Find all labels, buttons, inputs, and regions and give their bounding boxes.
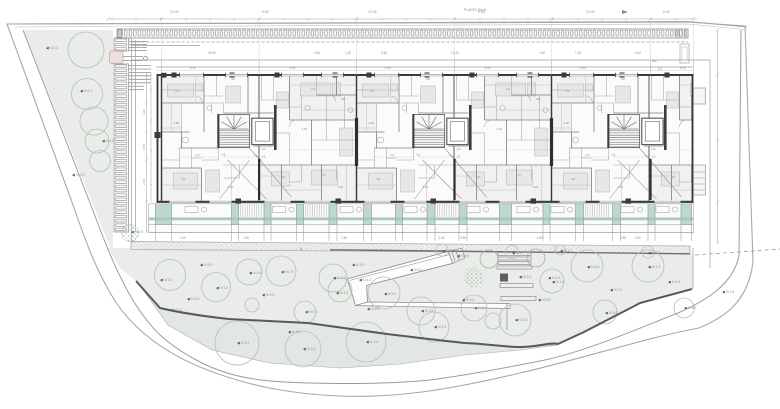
svg-text:SA: SA — [377, 177, 381, 181]
svg-text:CO: CO — [322, 173, 327, 177]
svg-text:N 3.2: N 3.2 — [241, 341, 249, 345]
svg-text:D1: D1 — [176, 89, 180, 93]
svg-text:BA: BA — [622, 77, 626, 81]
svg-text:6.40: 6.40 — [663, 10, 670, 14]
svg-text:N 1.5: N 1.5 — [438, 325, 446, 329]
svg-text:3.50: 3.50 — [290, 66, 296, 70]
svg-text:D1: D1 — [566, 89, 570, 93]
svg-text:3.20: 3.20 — [497, 127, 503, 131]
svg-text:N 5.8: N 5.8 — [191, 297, 199, 301]
svg-text:3.50: 3.50 — [680, 66, 686, 70]
svg-text:B: B — [300, 247, 302, 251]
svg-text:N 6.7: N 6.7 — [516, 251, 524, 255]
svg-text:6.40: 6.40 — [635, 51, 641, 55]
svg-text:2.80: 2.80 — [341, 236, 347, 240]
svg-text:N 6.6: N 6.6 — [591, 265, 599, 269]
svg-text:SC: SC — [477, 175, 481, 179]
svg-text:2.80: 2.80 — [142, 179, 146, 185]
svg-text:N 6.8: N 6.8 — [371, 307, 379, 311]
svg-text:D2: D2 — [507, 87, 511, 91]
svg-text:BB: BB — [342, 97, 346, 101]
svg-text:3.90: 3.90 — [338, 185, 344, 189]
svg-text:N 3.6: N 3.6 — [478, 306, 486, 310]
svg-text:N 5.2: N 5.2 — [388, 292, 396, 296]
svg-text:2.80: 2.80 — [537, 236, 543, 240]
svg-text:N 5.7: N 5.7 — [309, 310, 317, 314]
svg-text:V1: V1 — [612, 153, 616, 157]
svg-text:N 4.3: N 4.3 — [363, 278, 371, 282]
svg-text:N 1.0: N 1.0 — [614, 288, 622, 292]
svg-text:N 1.8: N 1.8 — [292, 330, 300, 334]
svg-text:HA: HA — [262, 147, 266, 151]
svg-text:N 3.0: N 3.0 — [414, 268, 422, 272]
svg-text:V2: V2 — [457, 155, 461, 159]
svg-text:N 3.5: N 3.5 — [519, 318, 527, 322]
svg-text:N 2.5: N 2.5 — [106, 139, 114, 143]
svg-text:CC: CC — [586, 153, 590, 157]
svg-text:N 3.9: N 3.9 — [337, 276, 345, 280]
svg-text:BA: BA — [427, 77, 431, 81]
svg-text:N 2.9: N 2.9 — [285, 270, 293, 274]
svg-text:3.90: 3.90 — [533, 185, 539, 189]
svg-text:V2: V2 — [652, 155, 656, 159]
svg-text:V1: V1 — [417, 153, 421, 157]
svg-text:BB: BB — [537, 97, 541, 101]
svg-text:2.4: 2.4 — [658, 67, 663, 71]
svg-text:N 3.9: N 3.9 — [356, 263, 364, 267]
svg-text:3.80: 3.80 — [460, 236, 466, 240]
svg-text:3.50: 3.50 — [485, 66, 491, 70]
svg-text:N 2.0: N 2.0 — [50, 46, 58, 50]
svg-text:N 1.6: N 1.6 — [726, 290, 734, 294]
svg-text:2.80: 2.80 — [635, 236, 641, 240]
svg-text:2.80: 2.80 — [620, 236, 626, 240]
svg-text:3.50: 3.50 — [381, 51, 387, 55]
svg-text:SA: SA — [572, 177, 576, 181]
svg-text:V2: V2 — [262, 155, 266, 159]
svg-text:PLANTA BAJA: PLANTA BAJA — [464, 8, 487, 12]
svg-text:N 1.9: N 1.9 — [135, 230, 143, 234]
svg-text:N 5.8: N 5.8 — [609, 311, 617, 315]
svg-text:3.50: 3.50 — [385, 66, 391, 70]
svg-text:N 2.0: N 2.0 — [523, 275, 531, 279]
svg-text:N 5.5: N 5.5 — [446, 249, 454, 253]
svg-text:N 4.5: N 4.5 — [461, 254, 469, 258]
svg-text:4.20: 4.20 — [180, 236, 186, 240]
svg-text:D1: D1 — [371, 89, 375, 93]
svg-text:3.50: 3.50 — [190, 66, 196, 70]
svg-text:9.80: 9.80 — [262, 10, 269, 14]
svg-text:CC: CC — [391, 153, 395, 157]
svg-text:CC: CC — [196, 153, 200, 157]
svg-text:2.80: 2.80 — [174, 121, 180, 125]
svg-text:N 5.5: N 5.5 — [204, 263, 212, 267]
svg-text:BA: BA — [232, 77, 236, 81]
svg-text:2.80: 2.80 — [564, 121, 570, 125]
svg-text:3.50: 3.50 — [314, 51, 320, 55]
svg-text:1.20: 1.20 — [575, 51, 581, 55]
svg-text:3.50: 3.50 — [580, 66, 586, 70]
svg-text:D2: D2 — [312, 87, 316, 91]
svg-text:N 6.1: N 6.1 — [84, 89, 92, 93]
svg-text:HA: HA — [652, 147, 656, 151]
svg-text:12.45: 12.45 — [451, 51, 459, 55]
svg-text:HA: HA — [457, 147, 461, 151]
svg-text:N 1.5: N 1.5 — [340, 291, 348, 295]
svg-text:SA: SA — [182, 177, 186, 181]
svg-text:N 2.9: N 2.9 — [76, 173, 84, 177]
svg-text:1.20: 1.20 — [345, 51, 351, 55]
svg-text:SC: SC — [672, 175, 676, 179]
svg-text:N 5.9: N 5.9 — [652, 251, 660, 255]
svg-text:CO: CO — [517, 173, 522, 177]
svg-text:N 2.0: N 2.0 — [307, 347, 315, 351]
svg-text:N 3.0: N 3.0 — [164, 278, 172, 282]
svg-text:N 4.8: N 4.8 — [672, 280, 680, 284]
svg-text:N 3.4: N 3.4 — [370, 340, 378, 344]
svg-text:acc: acc — [652, 59, 657, 63]
svg-text:3.50: 3.50 — [539, 51, 545, 55]
svg-text:12.45: 12.45 — [170, 10, 179, 14]
svg-text:N 5.6: N 5.6 — [542, 298, 550, 302]
svg-text:N 2.8: N 2.8 — [425, 309, 433, 313]
svg-text:2.80: 2.80 — [243, 236, 249, 240]
svg-text:N 6.4: N 6.4 — [466, 298, 474, 302]
svg-text:N 1.0: N 1.0 — [220, 286, 228, 290]
svg-text:3.50: 3.50 — [142, 144, 146, 150]
svg-text:V1: V1 — [222, 153, 226, 157]
svg-text:3.20: 3.20 — [302, 127, 308, 131]
svg-text:N 4.1: N 4.1 — [564, 249, 572, 253]
svg-text:12.45: 12.45 — [586, 10, 595, 14]
svg-text:35.40: 35.40 — [208, 51, 216, 55]
svg-text:N 3.9: N 3.9 — [266, 293, 274, 297]
svg-text:2.80: 2.80 — [439, 236, 445, 240]
svg-text:N 1.6: N 1.6 — [556, 280, 564, 284]
svg-text:N 4.6: N 4.6 — [253, 271, 261, 275]
svg-text:N 1.3: N 1.3 — [652, 265, 660, 269]
svg-text:SC: SC — [282, 175, 286, 179]
svg-text:12.45: 12.45 — [368, 10, 377, 14]
svg-text:2.80: 2.80 — [369, 121, 375, 125]
svg-text:4.20: 4.20 — [142, 109, 146, 115]
